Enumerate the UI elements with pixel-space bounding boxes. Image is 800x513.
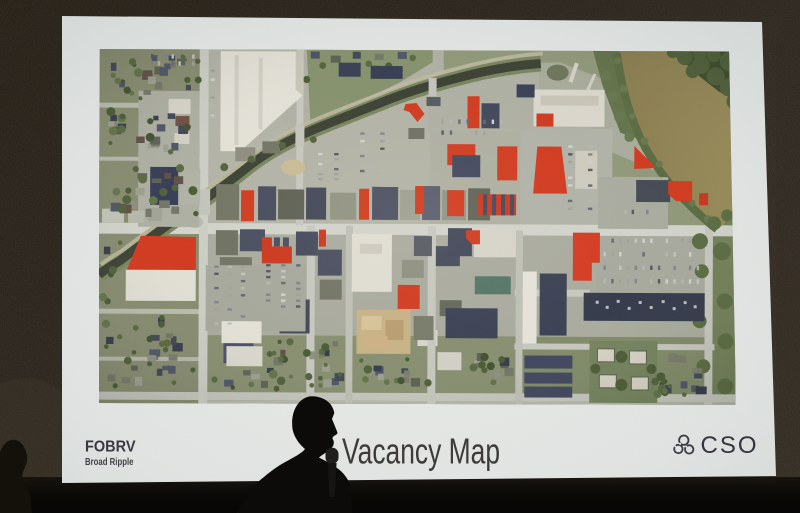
svg-text:FOBRV: FOBRV <box>85 439 136 456</box>
svg-text:Broad Ripple: Broad Ripple <box>85 457 134 468</box>
svg-text:CSO: CSO <box>701 432 759 459</box>
svg-text:Vacancy Map: Vacancy Map <box>342 431 500 472</box>
